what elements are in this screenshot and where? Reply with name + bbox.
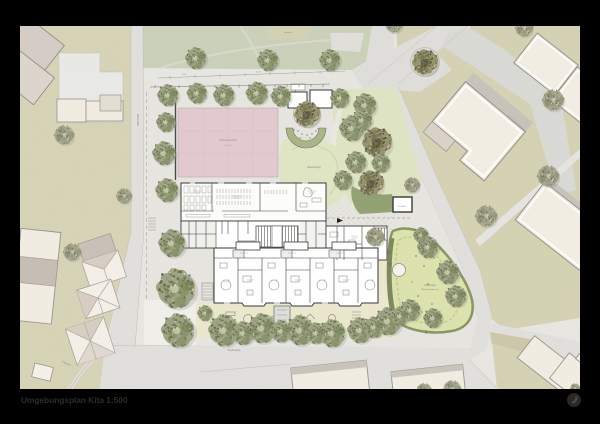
svg-text:Bestand: Bestand xyxy=(284,31,293,34)
svg-text:Allwetterplatz: Allwetterplatz xyxy=(219,138,237,142)
svg-text:Kleinkinderbereich: Kleinkinderbereich xyxy=(421,288,440,291)
svg-text:Südstraße: Südstraße xyxy=(228,348,241,352)
svg-text:Umgebungsplan Kita 1:500: Umgebungsplan Kita 1:500 xyxy=(21,395,128,405)
svg-text:Spielhügel: Spielhügel xyxy=(424,284,436,287)
svg-text:420 m²: 420 m² xyxy=(225,144,232,147)
svg-text:12.00: 12.00 xyxy=(256,72,262,74)
svg-text:Planstraße: Planstraße xyxy=(136,114,139,127)
svg-text:Rasenhügel: Rasenhügel xyxy=(307,166,321,169)
svg-text:Pavillon: Pavillon xyxy=(398,206,406,208)
svg-text:Rondell: Rondell xyxy=(302,122,310,124)
